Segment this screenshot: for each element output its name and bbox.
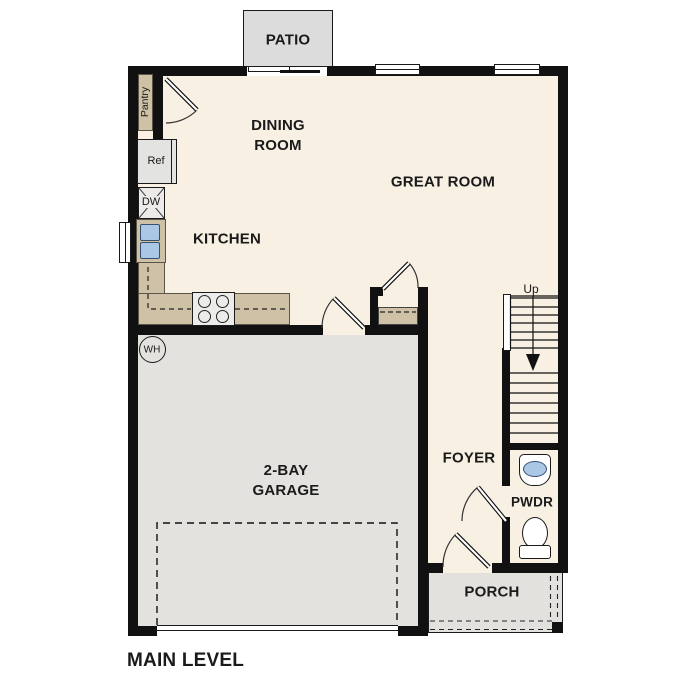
porch-post	[552, 622, 563, 633]
sink-basin-1	[140, 224, 160, 241]
stove	[192, 292, 235, 326]
wall-right	[558, 76, 568, 573]
wall-foyer-bottom-right	[492, 563, 568, 573]
refrigerator-label: Ref	[147, 155, 164, 167]
main-floor	[138, 76, 558, 325]
wall-pantry-right	[153, 73, 163, 139]
pantry-label: Pantry	[139, 87, 151, 117]
porch-slab	[428, 573, 563, 633]
plan-title: MAIN LEVEL	[127, 650, 244, 672]
window-top-2	[494, 64, 540, 75]
floor-plan: PATIO DINING ROOM GREAT ROOM KITCHEN 2-B…	[0, 0, 687, 687]
closet-shelf	[378, 307, 418, 325]
kitchen-label: KITCHEN	[193, 231, 261, 248]
wall-pwdr-top	[502, 443, 558, 450]
powder-sink-basin	[523, 461, 547, 477]
wall-closet-stub	[370, 287, 383, 296]
wall-pwdr-left-lower	[502, 517, 510, 563]
dining-room-label: DINING ROOM	[233, 116, 323, 156]
sink-basin-2	[140, 242, 160, 259]
wall-stair-pwdr-left	[502, 348, 510, 486]
garage-doorway-floor	[323, 325, 365, 335]
great-room-label: GREAT ROOM	[391, 174, 495, 191]
wall-garage-bottom-right	[398, 626, 428, 636]
garage-door	[157, 625, 398, 631]
burner-icon	[198, 310, 211, 323]
wall-foyer-bottom-left	[418, 563, 443, 573]
powder-room-label: PWDR	[511, 495, 553, 510]
foyer-label: FOYER	[443, 450, 496, 467]
closet-doorway-floor	[382, 287, 418, 296]
toilet-base	[519, 545, 551, 559]
garage-label: 2-BAY GARAGE	[244, 461, 329, 501]
wall-garage-top-left	[128, 325, 323, 335]
wall-garage-foyer-divider	[418, 287, 428, 636]
window-kitchen	[119, 222, 131, 263]
water-heater-label: WH	[144, 345, 161, 356]
patio-label: PATIO	[266, 32, 311, 49]
wall-garage-bottom-left	[128, 626, 157, 636]
porch-label: PORCH	[464, 584, 519, 601]
burner-icon	[216, 310, 229, 323]
front-door-threshold	[443, 563, 492, 573]
dishwasher-label: DW	[141, 196, 161, 208]
burner-icon	[216, 295, 229, 308]
stair-railing	[503, 294, 511, 351]
burner-icon	[198, 295, 211, 308]
sliding-door-panel-2	[280, 70, 320, 73]
stairs-up-label: Up	[523, 282, 538, 296]
window-top-1	[375, 64, 420, 75]
